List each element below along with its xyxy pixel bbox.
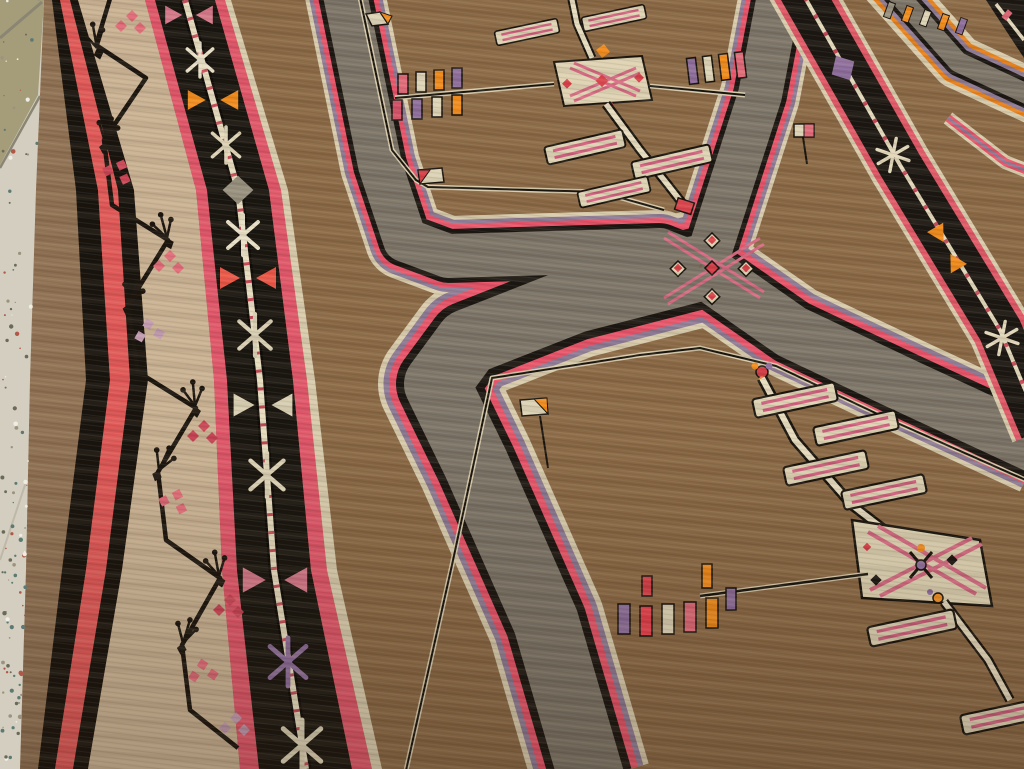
photo-of-rug-on-floor (0, 0, 1024, 769)
bottom-shadow (0, 0, 1024, 769)
